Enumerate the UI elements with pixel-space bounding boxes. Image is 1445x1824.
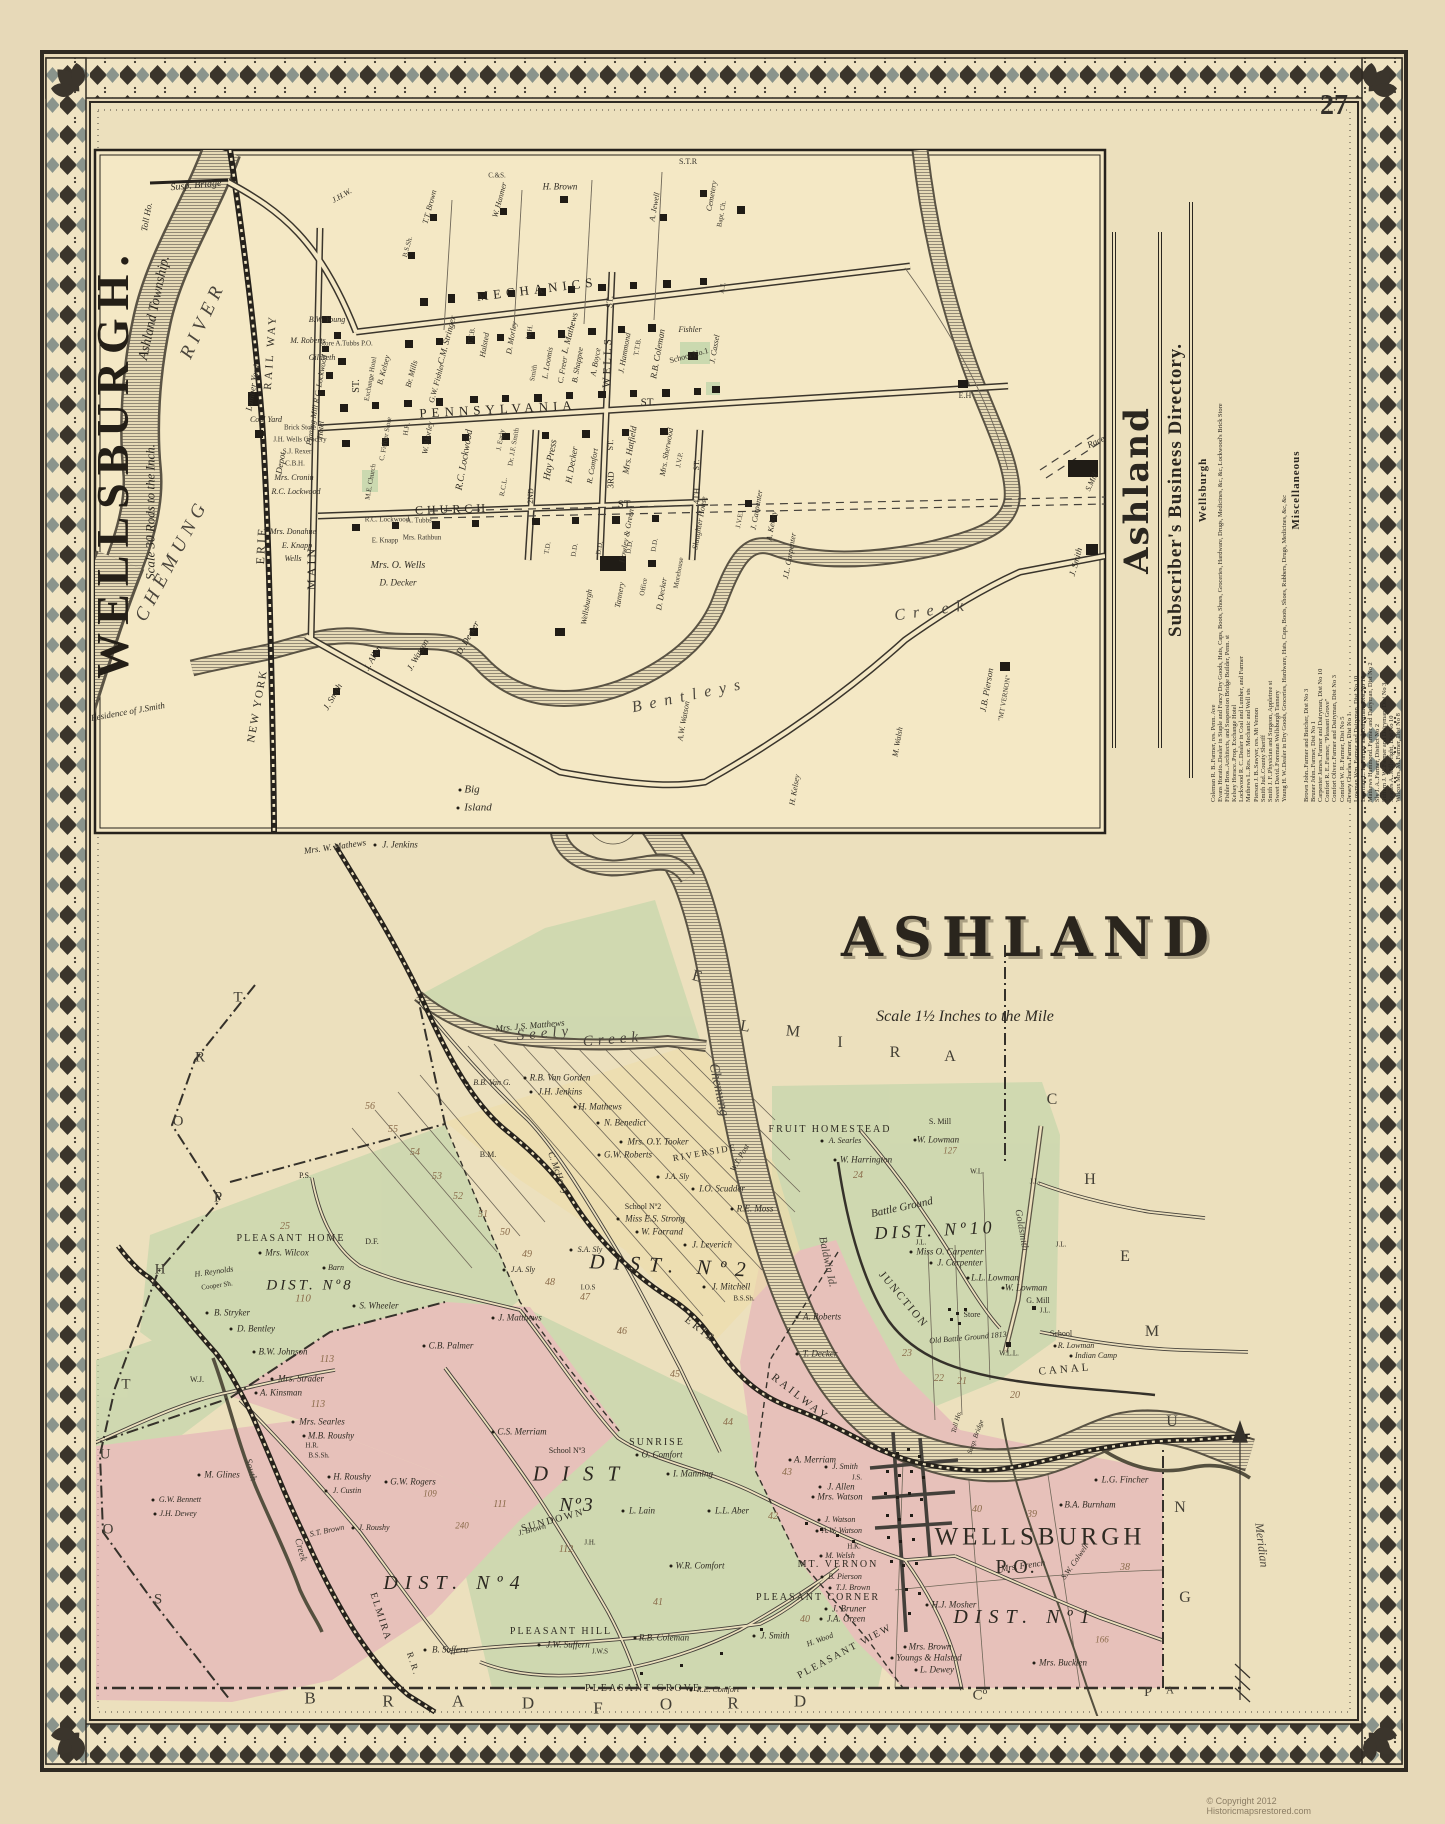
business-directory-rotated: Ashland Subscriber's Business Directory.… xyxy=(1112,172,1400,808)
directory-entry: Smith Jud..County Sheriff xyxy=(1260,178,1267,802)
directory-entry: Bruner John..Farmer, Dist No 1 xyxy=(1310,178,1317,802)
directory-section-heading: Miscellaneous xyxy=(1290,172,1302,808)
directory-entry: Comfort Oliver..Farmer and Dairyman, Dis… xyxy=(1331,178,1338,802)
directory-entry: Smith J. F..Physician and Surgeon, Apple… xyxy=(1267,178,1274,802)
directory-section-heading: Wellsburgh xyxy=(1197,172,1209,808)
directory-subtitle: Subscriber's Business Directory. xyxy=(1165,202,1193,778)
directory-entries: Brown John..Farmer and Butcher, Dist No … xyxy=(1303,172,1402,808)
directory-entries: Coleman R. B..Farmer, res. Penn. AveEvan… xyxy=(1210,172,1288,808)
directory-entry: Lowman L. L..Farmer and Dairyman, Dist N… xyxy=(1360,178,1367,802)
business-directory: Ashland Subscriber's Business Directory.… xyxy=(1112,172,1400,808)
directory-entry: Pierson J. B..Sawyer, res. Mt Vernon xyxy=(1253,178,1260,802)
directory-entry: Searles A..Millwright, Dist No 10 xyxy=(1388,178,1395,802)
directory-entry: Lowman Wm..Farmer and Dairyman, Dist No … xyxy=(1353,178,1360,802)
directory-entry: Brown John..Farmer and Butcher, Dist No … xyxy=(1303,178,1310,802)
directory-entry: Fishler Bros..Architects, and Suspension… xyxy=(1224,178,1231,802)
directory-entry: Sly J. A..Farmer, District No 2 xyxy=(1374,178,1381,802)
atlas-page: { "page": { "number": "27", "copyright":… xyxy=(0,0,1445,1824)
page-number: 27 xyxy=(1320,90,1348,122)
directory-entry: Mathews Hammond..Farmer and Dairyman, Di… xyxy=(1367,178,1374,802)
directory-entry: Lockwood R. C..Dealer in Coal and Lumber… xyxy=(1238,178,1245,802)
directory-entry: Carpenter James..Farmer and Dairyman, Di… xyxy=(1317,178,1324,802)
copyright-note: © Copyright 2012 Historicmapsrestored.co… xyxy=(1207,1796,1366,1816)
directory-entry: Mathews L..Res. cor. Mechanic and Well s… xyxy=(1245,178,1252,802)
directory-entry: Coleman R. B..Farmer, res. Penn. Ave xyxy=(1210,178,1217,802)
directory-entry: Suffern J. W..Farmer and Dairyman, Dist … xyxy=(1381,178,1388,802)
directory-entry: Comfort W. R..Farmer, Dist No 5 xyxy=(1339,178,1346,802)
directory-entry: Wilcox Mrs. M..Farmer, Dist No 8 xyxy=(1395,178,1402,802)
directory-entry: Sweet David..Foreman Wellsburgh Tannery xyxy=(1274,178,1281,802)
directory-title: Ashland xyxy=(1112,232,1162,748)
directory-entry: Comfort R. E..Farmer, "Pleasant Grove" xyxy=(1324,178,1331,802)
directory-entry: Evans Horatio..Dealer in Staple and Fanc… xyxy=(1217,178,1224,802)
directory-sections: WellsburghColeman R. B..Farmer, res. Pen… xyxy=(1197,172,1402,808)
directory-entry: Dewey Charles..Farmer, Dist No 1 xyxy=(1346,178,1353,802)
wellsburgh-town-map xyxy=(50,150,1105,833)
directory-entry: Young H. W..Dealer in Dry Goods, Groceri… xyxy=(1281,178,1288,802)
directory-entry: Kelsey Horace..Prop. Exchange Hotel xyxy=(1231,178,1238,802)
